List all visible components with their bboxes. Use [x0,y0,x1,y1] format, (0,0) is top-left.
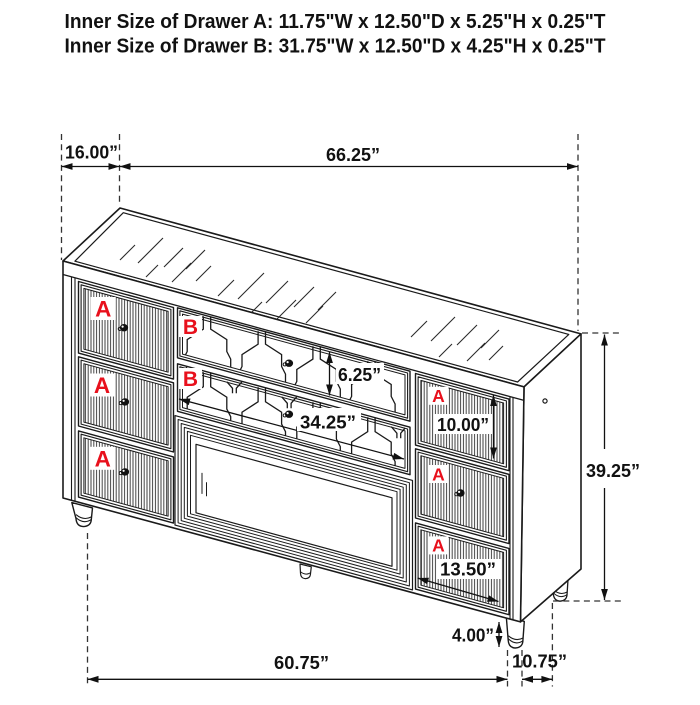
svg-text:A: A [95,297,111,322]
svg-text:16.00”: 16.00” [65,142,118,163]
svg-text:10.00”: 10.00” [437,414,489,435]
svg-text:39.25”: 39.25” [586,460,640,481]
svg-text:Inner Size of Drawer A: 11.75": Inner Size of Drawer A: 11.75"W x 12.50"… [65,10,606,33]
svg-text:B: B [183,316,198,339]
svg-text:13.50”: 13.50” [440,559,496,580]
svg-text:34.25”: 34.25” [300,412,356,433]
svg-text:A: A [95,446,111,471]
svg-text:Inner Size of Drawer B: 31.75": Inner Size of Drawer B: 31.75"W x 12.50"… [65,35,606,58]
svg-text:A: A [432,386,445,406]
svg-text:6.25”: 6.25” [338,364,381,385]
svg-text:4.00”: 4.00” [452,625,494,646]
svg-text:B: B [183,368,198,391]
svg-text:60.75”: 60.75” [274,652,329,673]
svg-text:A: A [432,464,445,484]
svg-text:A: A [94,373,110,398]
svg-text:A: A [432,536,445,556]
svg-text:66.25”: 66.25” [326,144,380,165]
svg-text:10.75”: 10.75” [512,651,567,672]
